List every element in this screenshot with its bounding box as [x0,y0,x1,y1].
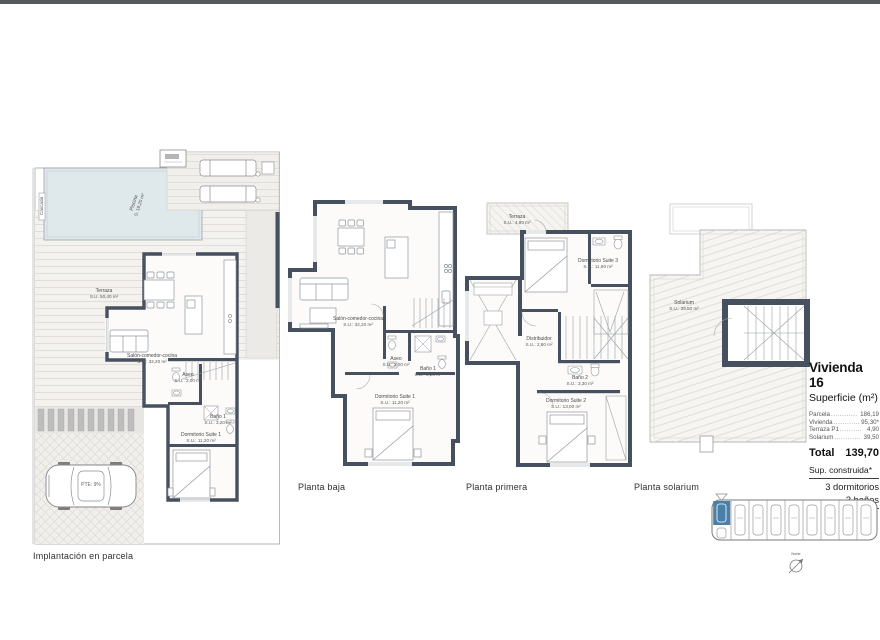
first-floor-plan: TerrazaS.U.: 4,90 m² Dormitorio Suite 3S… [462,196,640,481]
boundary-wall [276,212,280,308]
room-label-solarium: SolariumS.U.: 39,50 m² [669,300,699,312]
pergola-slats [35,407,144,433]
room-label-terraza: TerrazaS.U.: 4,90 m² [503,214,530,226]
side-table-icon [262,162,274,174]
room-label-aseo: AseoS.U.: 2,00 m² [382,356,409,368]
area-row-solarium: Solarium ............ 39,50 [809,434,879,442]
room-label-dorm3: Dormitorio Suite 3S.U.: 11,80 m² [578,258,618,270]
bed-icon [539,412,595,462]
north-label: Norte [791,552,800,556]
room-label-bano1: Baño 1S.U.: 3,20 m² [204,414,231,426]
solarium-drawing [648,194,812,479]
site-plan-caption: Implantación en parcela [33,551,133,561]
bedrooms-count: 3 dormitorios [809,482,879,492]
dining-table-icon [338,220,364,254]
room-label-salon: Salón-comedor-cocinaS.U.: 32,20 m² [127,353,177,365]
room-label-dorm1: Dormitorio Suite 1S.U.: 11,20 m² [375,394,415,406]
top-border-bar [0,0,880,4]
ground-floor-drawing [288,196,463,481]
sun-lounger-icon [200,186,260,202]
dining-table-icon [144,272,174,308]
surface-subtitle: Superficie (m²) [809,392,879,404]
solarium-plan: SolariumS.U.: 39,50 m² [648,194,812,479]
key-plan-drawing [710,492,880,588]
room-label-terraza: TerrazaS.U. 50,40 m² [90,288,118,300]
stair-enclosure [714,302,807,364]
sun-lounger-icon [200,160,260,176]
ground-floor-caption: Planta baja [298,482,345,492]
room-label-cascada: Cascada [39,197,45,215]
sofa-icon [110,330,148,352]
total-value: 139,70 [845,447,879,459]
area-row-terraza: Terraza P1 .......... 4,90 [809,426,879,434]
gravel-strip [246,210,277,358]
unit-title: Vivienda 16 [809,360,879,390]
chimney-box [700,436,713,452]
area-summary-panel: Vivienda 16 Superficie (m²) Parcela ....… [809,360,879,509]
area-row-vivienda: Vivienda ............ 95,30* [809,419,879,427]
first-floor-caption: Planta primera [466,482,527,492]
total-row: Total 139,70 [809,447,879,459]
room-label-aseo: AseoS.U.: 2,00 m² [174,372,201,384]
room-label-salon: Salón-comedor-cocinaS.U.: 32,20 m² [333,316,383,328]
north-compass-icon [789,559,803,573]
room-label-distribuidor: DistribuidorS.U.: 2,80 m² [525,336,552,348]
room-label-bano1: Baño 1S.U.: 3,20 m² [414,366,441,378]
room-label-dorm2: Dormitorio Suite 2S.U.: 13,00 m² [546,398,586,410]
solarium-caption: Planta solarium [634,482,699,492]
bed-icon [525,238,567,292]
bed-icon [365,408,421,460]
site-plan-drawing [32,148,282,548]
floor-plan-sheet: PiscinaS: 18,20 m² Cascada TerrazaS.U. 5… [0,0,880,640]
equipment-box [160,150,186,167]
area-rows: Parcela ............ 186,19 Vivienda ...… [809,411,879,441]
key-plan: Norte [710,492,880,588]
roof-outline [670,204,752,234]
divider [809,478,879,479]
room-label-bano2: Baño 2S.U.: 3,30 m² [566,375,593,387]
site-plan: PiscinaS: 18,20 m² Cascada TerrazaS.U. 5… [32,148,282,548]
ground-floor-plan: Salón-comedor-cocinaS.U.: 32,20 m² AseoS… [288,196,463,481]
area-row-parcela: Parcela ............ 186,19 [809,411,879,419]
room-label-dorm1: Dormitorio Suite 1S.U.: 11,20 m² [181,432,221,444]
slope-label: PTE: 9% [81,482,101,488]
built-surface-note: Sup. construida* [809,465,879,475]
total-label: Total [809,447,834,459]
bed-icon [168,450,215,498]
